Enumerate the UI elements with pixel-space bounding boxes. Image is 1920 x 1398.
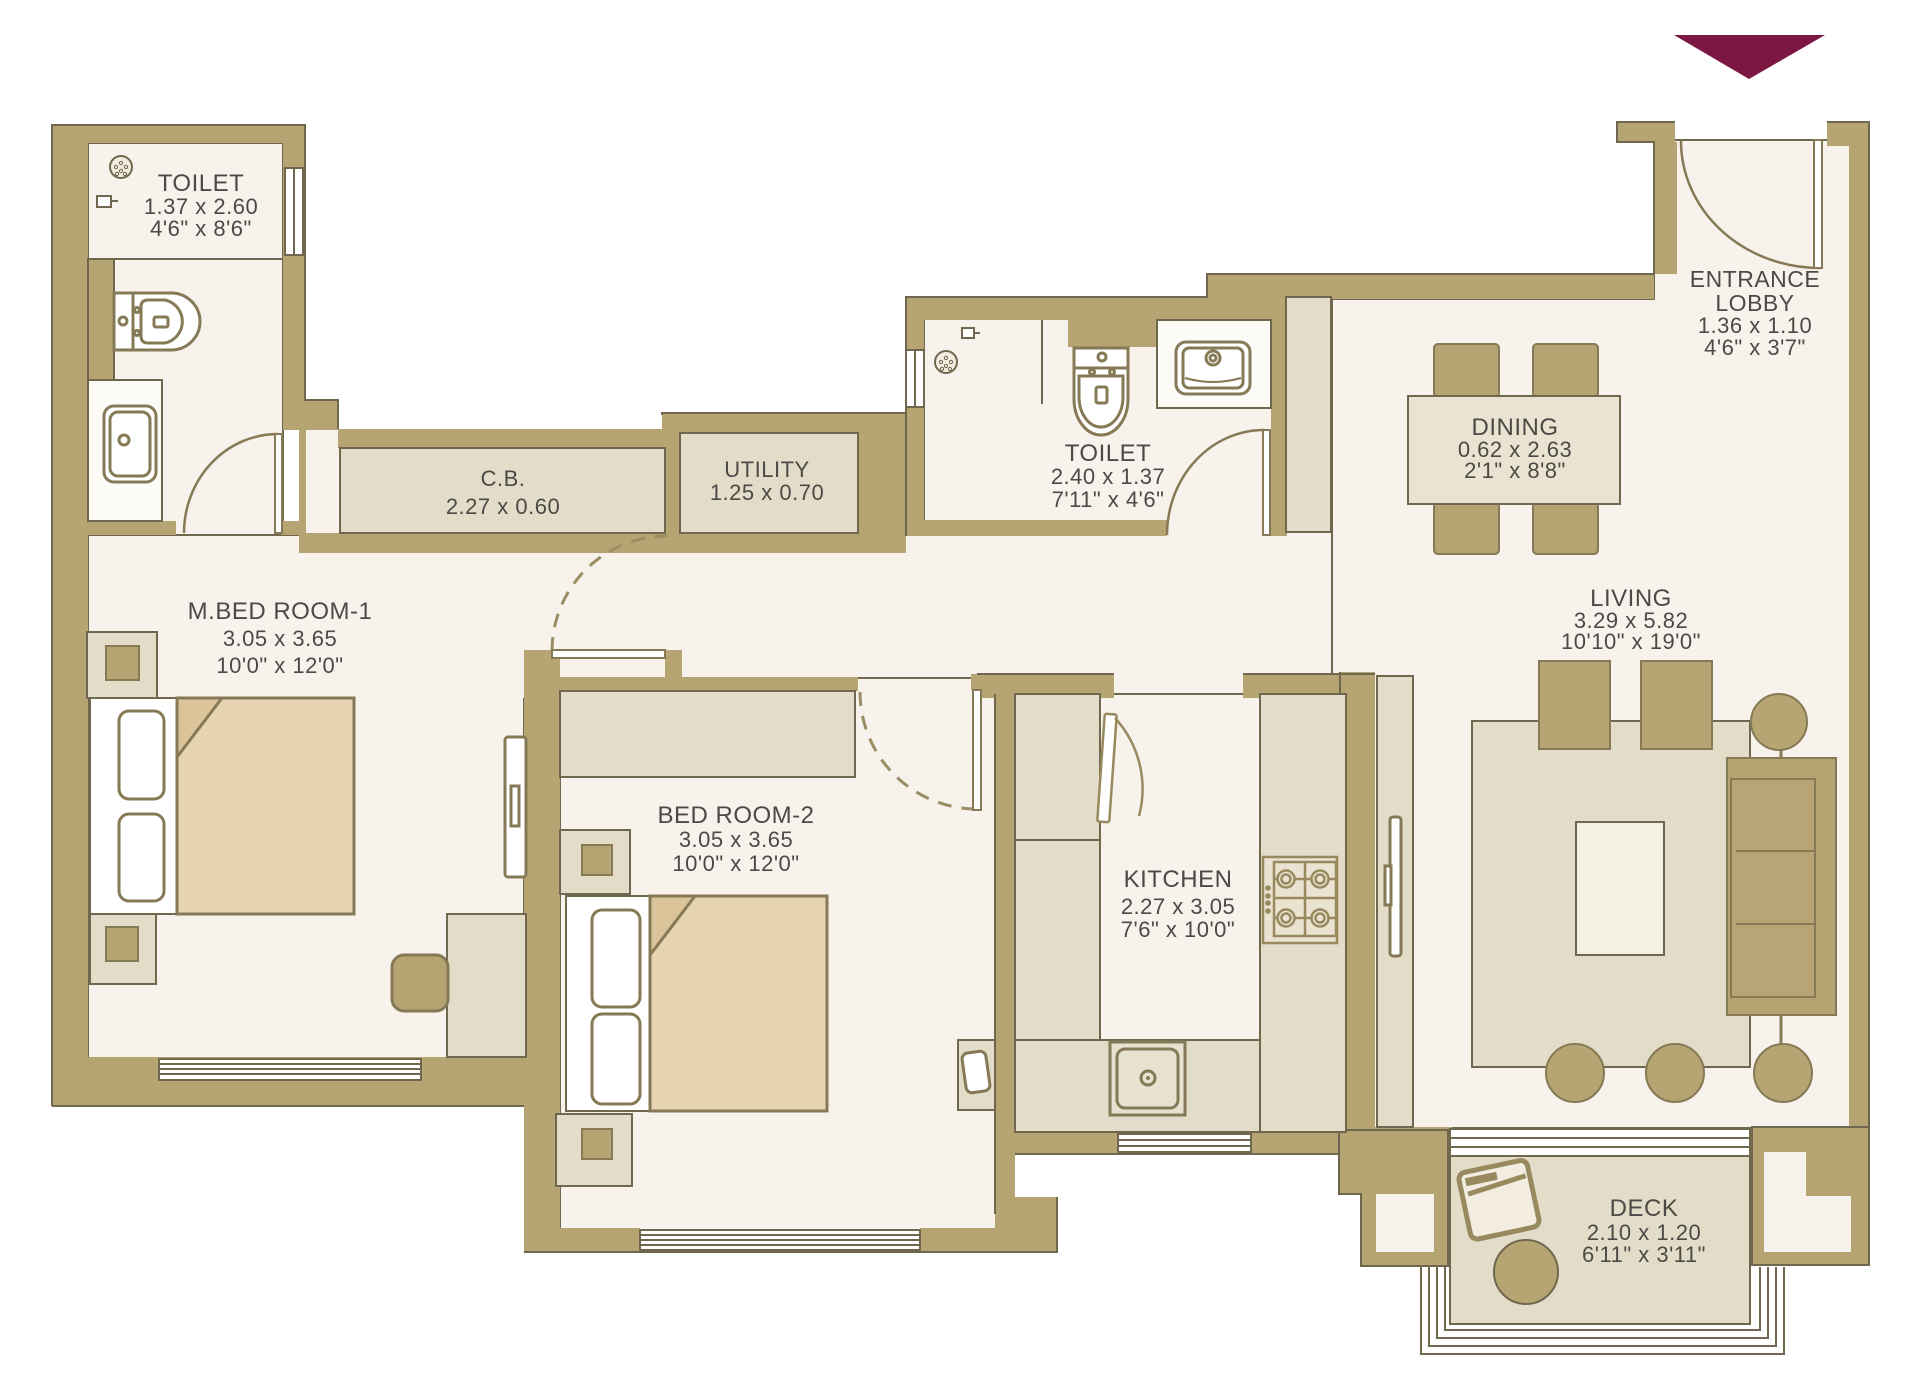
svg-text:TOILET: TOILET	[158, 170, 245, 197]
svg-text:2'1" x 8'8": 2'1" x 8'8"	[1464, 458, 1566, 483]
svg-text:2.27 x 0.60: 2.27 x 0.60	[446, 494, 560, 519]
svg-text:3.05 x 3.65: 3.05 x 3.65	[223, 626, 337, 651]
svg-text:KITCHEN: KITCHEN	[1124, 866, 1233, 893]
svg-text:10'0" x 12'0": 10'0" x 12'0"	[216, 653, 343, 678]
svg-text:3.05 x 3.65: 3.05 x 3.65	[679, 827, 793, 852]
svg-text:10'10" x 19'0": 10'10" x 19'0"	[1561, 629, 1701, 654]
svg-text:TOILET: TOILET	[1065, 440, 1152, 467]
svg-text:4'6" x 8'6": 4'6" x 8'6"	[150, 216, 252, 241]
svg-text:M.BED ROOM-1: M.BED ROOM-1	[188, 598, 373, 625]
svg-text:4'6" x 3'7": 4'6" x 3'7"	[1704, 335, 1806, 360]
svg-text:10'0" x 12'0": 10'0" x 12'0"	[672, 851, 799, 876]
svg-text:UTILITY: UTILITY	[724, 457, 809, 482]
svg-text:BED ROOM-2: BED ROOM-2	[657, 802, 814, 829]
svg-text:DECK: DECK	[1610, 1195, 1679, 1222]
svg-text:1.25 x 0.70: 1.25 x 0.70	[710, 480, 824, 505]
svg-text:2.40 x 1.37: 2.40 x 1.37	[1051, 464, 1165, 489]
svg-text:6'11" x 3'11": 6'11" x 3'11"	[1582, 1242, 1706, 1267]
svg-text:7'6" x 10'0": 7'6" x 10'0"	[1121, 917, 1235, 942]
svg-text:C.B.: C.B.	[481, 466, 526, 491]
svg-text:ENTRANCE: ENTRANCE	[1690, 266, 1821, 292]
svg-text:7'11" x 4'6": 7'11" x 4'6"	[1052, 487, 1165, 512]
svg-text:2.27 x 3.05: 2.27 x 3.05	[1121, 894, 1235, 919]
